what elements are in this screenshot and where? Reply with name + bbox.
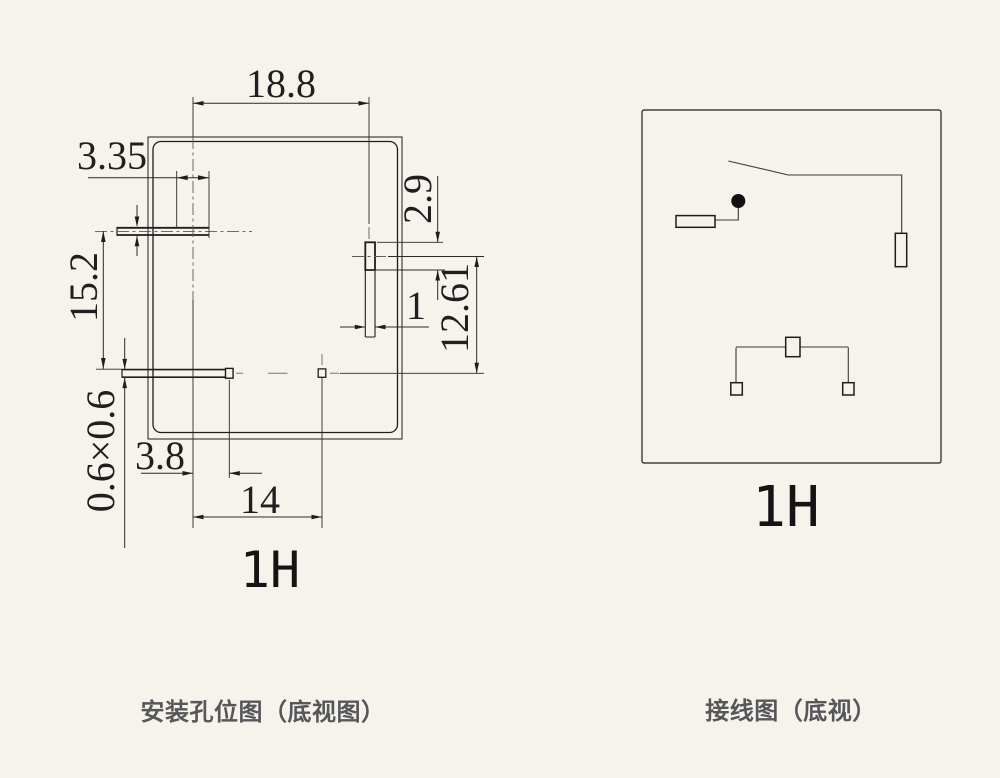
common-point-dot — [731, 194, 745, 208]
common-wire — [715, 208, 738, 220]
switch-blade — [728, 161, 788, 175]
wiring-diagram — [642, 110, 941, 463]
dim-right-pitch: 12.61 — [435, 263, 475, 353]
coil-symbol — [731, 337, 854, 395]
dim-slot-cross-section: 0.6×0.6 — [81, 390, 121, 513]
left-drawing-form-label: 1H — [240, 545, 300, 595]
center-square-hole — [318, 354, 326, 377]
dim-top-width: 18.8 — [246, 64, 316, 104]
right-drawing-caption: 接线图（底视） — [705, 700, 877, 724]
drawings-linework — [0, 0, 1000, 778]
common-terminal — [676, 216, 715, 228]
bottom-left-slot — [122, 368, 233, 378]
dim-hole-width: 1 — [406, 286, 426, 326]
dim-hole-height: 2.9 — [398, 174, 438, 224]
dim-bottom-offset: 3.8 — [135, 436, 185, 476]
contact-terminal — [895, 233, 906, 266]
left-drawing-caption: 安装孔位图（底视图） — [141, 701, 386, 725]
contact-wire — [788, 175, 901, 233]
dim-top-slot-length: 3.35 — [77, 136, 147, 176]
dim-left-pitch: 15.2 — [64, 252, 104, 322]
datasheet-page: 18.8 3.35 15.2 2.9 1 12.61 0.6×0.6 3.8 1… — [0, 0, 1000, 778]
right-drawing-form-label: 1H — [752, 480, 819, 536]
dim-bottom-pitch: 14 — [240, 480, 280, 520]
wiring-box — [642, 110, 941, 463]
package-outline — [148, 137, 402, 439]
